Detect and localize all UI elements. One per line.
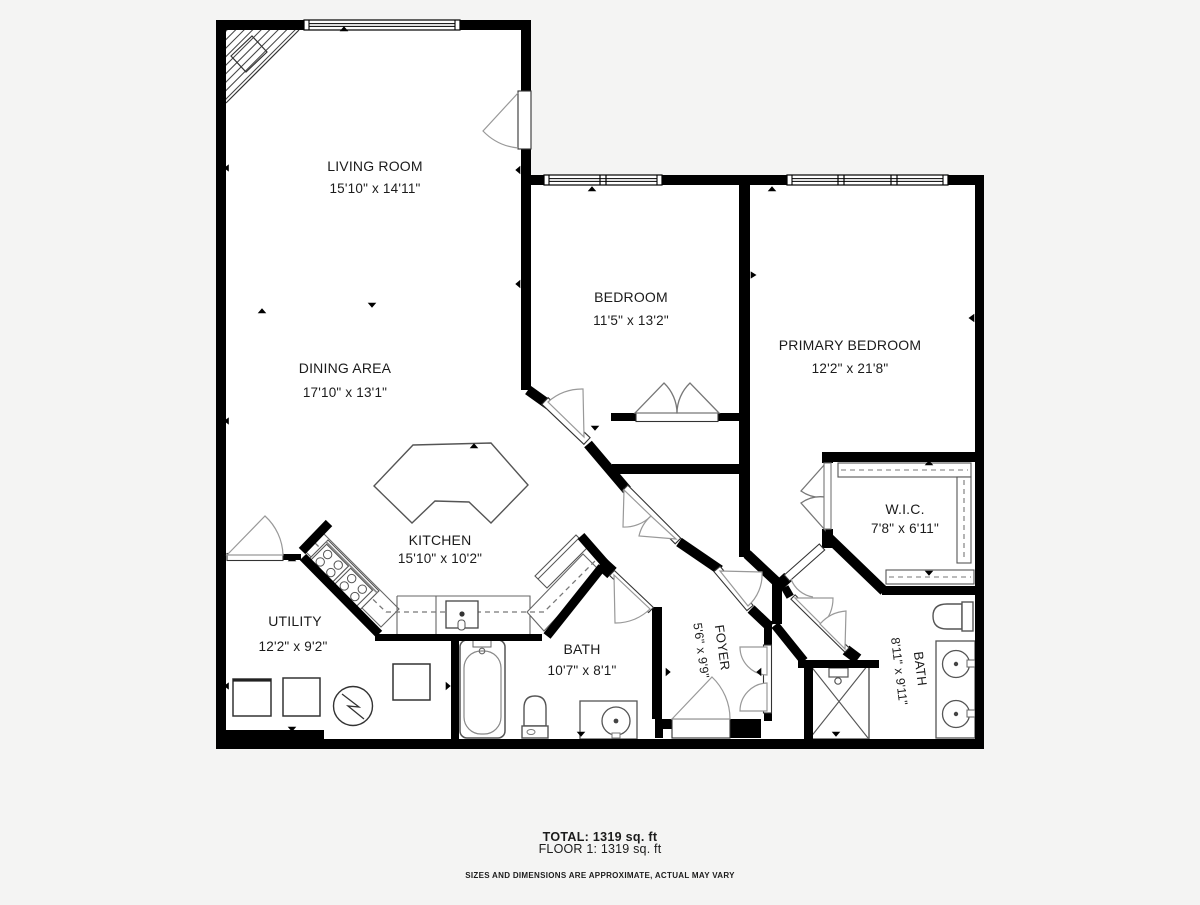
- svg-text:BATH: BATH: [563, 641, 600, 657]
- svg-text:UTILITY: UTILITY: [268, 613, 322, 629]
- svg-text:15'10" x 14'11": 15'10" x 14'11": [329, 181, 420, 196]
- svg-text:10'7" x 8'1": 10'7" x 8'1": [548, 663, 617, 678]
- svg-text:DINING AREA: DINING AREA: [299, 360, 392, 376]
- svg-text:BEDROOM: BEDROOM: [594, 289, 668, 305]
- svg-text:11'5" x 13'2": 11'5" x 13'2": [593, 313, 669, 328]
- svg-text:KITCHEN: KITCHEN: [409, 532, 472, 548]
- svg-text:7'8" x 6'11": 7'8" x 6'11": [871, 521, 939, 536]
- svg-text:12'2" x 9'2": 12'2" x 9'2": [259, 639, 328, 654]
- svg-text:W.I.C.: W.I.C.: [885, 501, 924, 517]
- svg-text:17'10" x 13'1": 17'10" x 13'1": [303, 385, 387, 400]
- svg-text:LIVING ROOM: LIVING ROOM: [327, 158, 423, 174]
- svg-text:PRIMARY BEDROOM: PRIMARY BEDROOM: [779, 337, 922, 353]
- svg-text:15'10" x 10'2": 15'10" x 10'2": [398, 551, 482, 566]
- svg-text:FLOOR 1: 1319 sq. ft: FLOOR 1: 1319 sq. ft: [539, 842, 662, 856]
- svg-text:12'2" x 21'8": 12'2" x 21'8": [812, 361, 889, 376]
- svg-text:SIZES AND DIMENSIONS ARE APPRO: SIZES AND DIMENSIONS ARE APPROXIMATE, AC…: [465, 871, 735, 880]
